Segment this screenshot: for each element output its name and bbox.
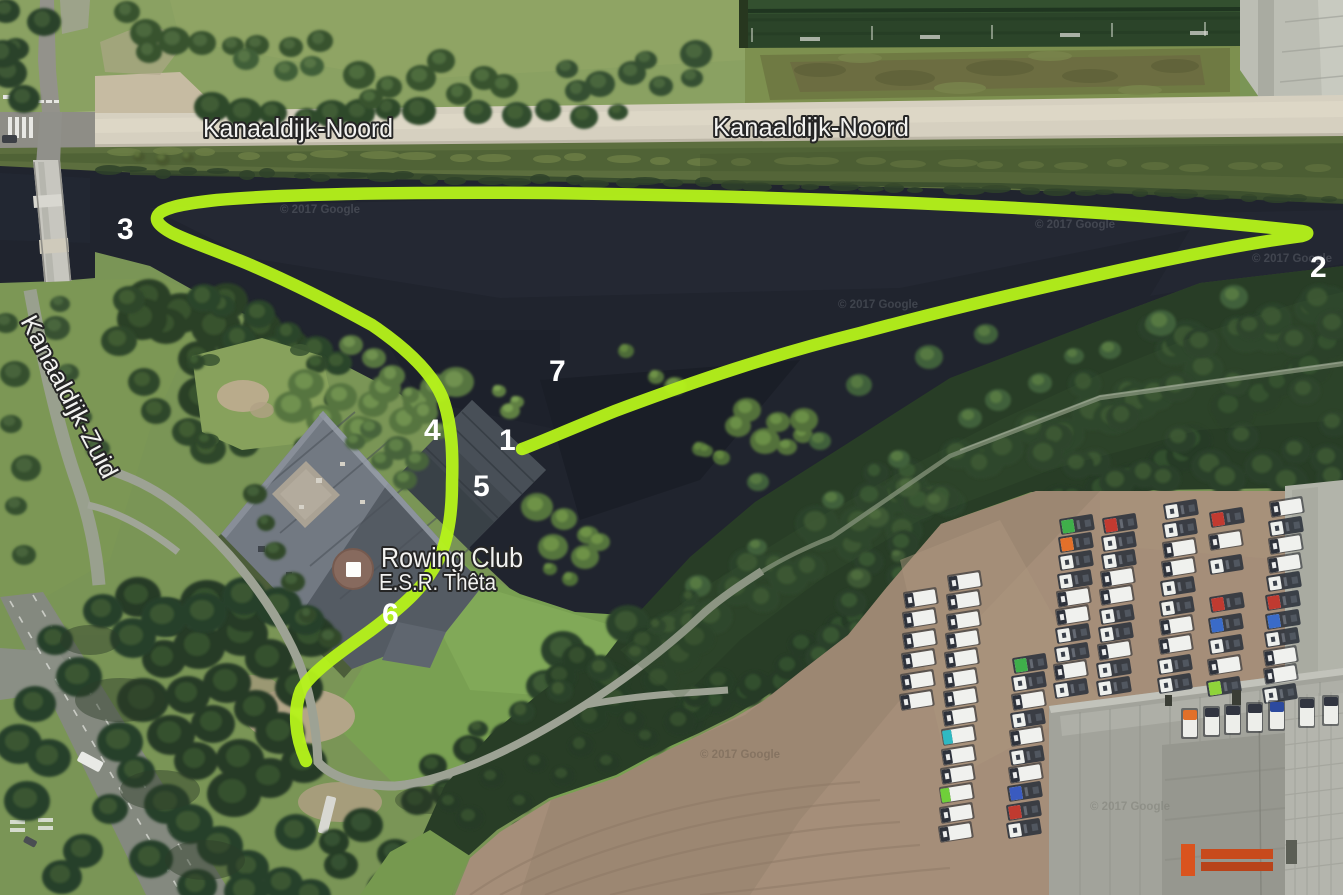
svg-text:© 2017 Google: © 2017 Google [700,749,780,761]
svg-text:7: 7 [549,355,566,388]
svg-text:1: 1 [499,424,516,457]
svg-text:© 2017 Google: © 2017 Google [280,204,360,216]
svg-text:© 2017 Google: © 2017 Google [838,299,918,311]
svg-text:E.S.R. Thêta: E.S.R. Thêta [379,569,496,595]
svg-text:5: 5 [473,470,490,503]
svg-text:© 2017 Google: © 2017 Google [1252,253,1332,265]
svg-text:6: 6 [382,598,399,631]
svg-text:Kanaaldijk-Noord: Kanaaldijk-Noord [713,112,909,142]
svg-text:4: 4 [424,414,441,447]
svg-text:3: 3 [117,213,134,246]
svg-text:© 2017 Google: © 2017 Google [1035,219,1115,231]
svg-text:© 2017 Google: © 2017 Google [1090,801,1170,813]
svg-text:Kanaaldijk-Noord: Kanaaldijk-Noord [203,113,393,143]
